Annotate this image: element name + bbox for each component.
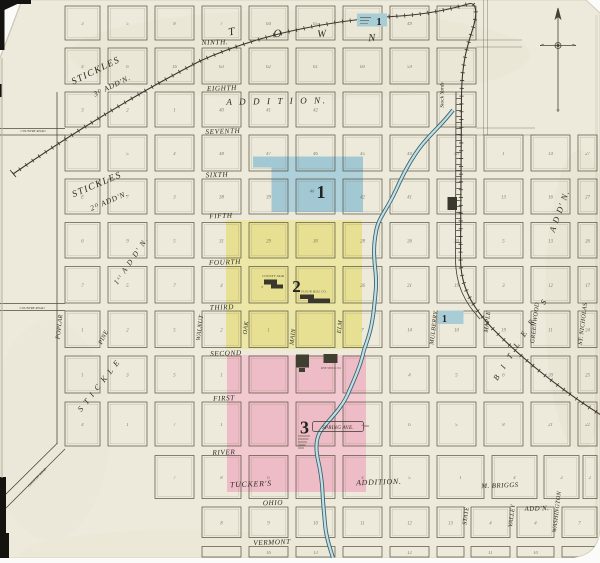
svg-text:FIFTH: FIFTH bbox=[208, 212, 233, 221]
svg-text:FIRST: FIRST bbox=[212, 394, 235, 403]
svg-text:48: 48 bbox=[219, 152, 224, 157]
svg-text:COUNTRY ROAD: COUNTRY ROAD bbox=[19, 306, 45, 310]
svg-text:TUCKER'S: TUCKER'S bbox=[230, 479, 272, 489]
svg-text:1: 1 bbox=[81, 374, 83, 379]
svg-text:16: 16 bbox=[172, 65, 177, 70]
svg-text:1: 1 bbox=[126, 423, 128, 428]
svg-text:20: 20 bbox=[454, 239, 459, 244]
svg-text:10: 10 bbox=[454, 328, 459, 333]
svg-text:3: 3 bbox=[261, 285, 263, 289]
svg-text:ADD'N.: ADD'N. bbox=[524, 505, 550, 513]
svg-text:19: 19 bbox=[454, 284, 459, 289]
svg-text:EIGHTH: EIGHTH bbox=[206, 84, 237, 93]
svg-text:12: 12 bbox=[407, 521, 412, 526]
svg-text:20: 20 bbox=[548, 374, 553, 379]
svg-text:26: 26 bbox=[360, 284, 365, 289]
svg-text:1: 1 bbox=[376, 17, 381, 28]
svg-text:39: 39 bbox=[266, 196, 271, 201]
svg-text:28: 28 bbox=[360, 239, 365, 244]
svg-text:40: 40 bbox=[219, 109, 224, 114]
svg-text:63: 63 bbox=[219, 65, 224, 70]
svg-text:2: 2 bbox=[292, 277, 301, 296]
svg-text:26: 26 bbox=[407, 239, 412, 244]
svg-text:17: 17 bbox=[585, 284, 590, 289]
svg-text:1: 1 bbox=[220, 374, 222, 379]
svg-text:19: 19 bbox=[501, 328, 506, 333]
svg-text:FOURTH: FOURTH bbox=[208, 258, 241, 267]
svg-text:THIRD: THIRD bbox=[210, 303, 235, 312]
svg-text:OHIO: OHIO bbox=[263, 499, 284, 508]
svg-text:11: 11 bbox=[488, 551, 492, 556]
svg-text:14: 14 bbox=[548, 152, 553, 157]
svg-text:46: 46 bbox=[313, 152, 318, 157]
svg-text:SPRING AVE.: SPRING AVE. bbox=[322, 425, 354, 431]
svg-text:1: 1 bbox=[442, 314, 447, 325]
svg-text:16: 16 bbox=[548, 196, 553, 201]
svg-text:41: 41 bbox=[407, 196, 412, 201]
svg-text:45: 45 bbox=[360, 152, 365, 157]
svg-text:47: 47 bbox=[266, 152, 271, 157]
svg-text:LIVE STOCK CO.: LIVE STOCK CO. bbox=[320, 367, 342, 370]
svg-text:64: 64 bbox=[266, 22, 271, 27]
svg-text:26: 26 bbox=[585, 239, 590, 244]
svg-text:24: 24 bbox=[585, 328, 590, 333]
svg-text:21: 21 bbox=[407, 284, 412, 289]
svg-text:SIXTH: SIXTH bbox=[206, 171, 229, 180]
svg-text:13: 13 bbox=[313, 551, 318, 556]
svg-text:21: 21 bbox=[548, 423, 553, 428]
svg-text:60: 60 bbox=[360, 65, 365, 70]
svg-text:41: 41 bbox=[266, 109, 271, 114]
svg-text:12: 12 bbox=[548, 284, 553, 289]
svg-text:14: 14 bbox=[407, 328, 412, 333]
svg-text:13: 13 bbox=[548, 239, 553, 244]
svg-text:29: 29 bbox=[266, 239, 271, 244]
svg-text:61: 61 bbox=[313, 65, 318, 70]
svg-text:A D D I T I O N.: A D D I T I O N. bbox=[225, 95, 327, 107]
svg-text:40: 40 bbox=[310, 189, 315, 194]
svg-text:38: 38 bbox=[219, 196, 224, 201]
svg-text:ADDITION.: ADDITION. bbox=[355, 477, 402, 488]
svg-text:1: 1 bbox=[81, 328, 83, 333]
svg-text:42: 42 bbox=[313, 109, 318, 114]
svg-text:1: 1 bbox=[317, 182, 326, 202]
svg-text:M. BRIGGS: M. BRIGGS bbox=[480, 482, 519, 490]
svg-text:SECOND: SECOND bbox=[210, 349, 242, 358]
svg-text:42: 42 bbox=[360, 196, 365, 201]
svg-text:Stock Yards: Stock Yards bbox=[440, 82, 446, 107]
svg-text:25: 25 bbox=[585, 374, 590, 379]
svg-text:16: 16 bbox=[266, 551, 271, 556]
svg-text:22: 22 bbox=[585, 423, 590, 428]
svg-text:13: 13 bbox=[501, 196, 506, 201]
svg-text:49: 49 bbox=[407, 22, 412, 27]
svg-text:1: 1 bbox=[459, 476, 461, 481]
svg-text:NINTH.: NINTH. bbox=[201, 38, 229, 47]
svg-text:1: 1 bbox=[267, 328, 269, 333]
svg-text:30: 30 bbox=[313, 239, 318, 244]
svg-text:1: 1 bbox=[220, 423, 222, 428]
svg-text:COUNTY FAIR: COUNTY FAIR bbox=[262, 274, 284, 278]
svg-text:27: 27 bbox=[585, 196, 590, 201]
svg-text:12: 12 bbox=[407, 551, 412, 556]
svg-text:13: 13 bbox=[448, 521, 453, 526]
svg-text:62: 62 bbox=[266, 65, 271, 70]
svg-text:11: 11 bbox=[360, 521, 364, 526]
svg-text:10: 10 bbox=[313, 521, 318, 526]
svg-text:SEVENTH: SEVENTH bbox=[205, 127, 240, 136]
svg-text:FLOUR MILL CO.: FLOUR MILL CO. bbox=[300, 290, 327, 294]
svg-text:RIVER: RIVER bbox=[211, 448, 235, 457]
svg-text:1: 1 bbox=[502, 152, 504, 157]
svg-text:10: 10 bbox=[533, 551, 538, 556]
svg-text:O: O bbox=[273, 28, 283, 41]
svg-text:31: 31 bbox=[219, 239, 224, 244]
svg-text:59: 59 bbox=[407, 65, 412, 70]
svg-text:COUNTRY ROAD: COUNTRY ROAD bbox=[20, 129, 46, 133]
svg-text:1: 1 bbox=[173, 109, 175, 114]
svg-text:VERMONT: VERMONT bbox=[253, 538, 291, 547]
svg-text:11: 11 bbox=[548, 328, 552, 333]
svg-text:3: 3 bbox=[300, 418, 309, 438]
svg-text:27: 27 bbox=[585, 152, 590, 157]
